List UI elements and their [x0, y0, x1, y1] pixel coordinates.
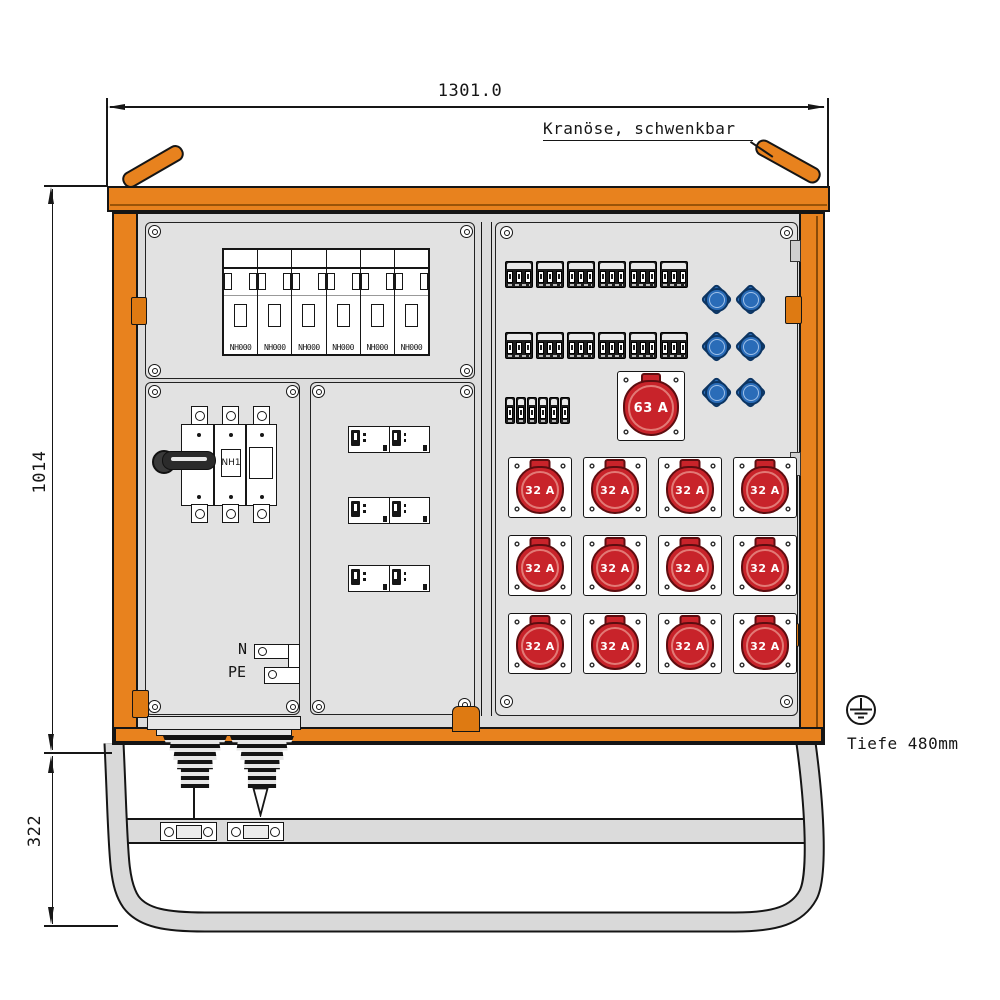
cee-socket-32a: 32 A	[733, 535, 797, 596]
dim-arrow	[48, 907, 54, 924]
schuko-socket	[701, 280, 733, 320]
distribution-cabinet-drawing: NH000 NH000 NH000 NH000 NH000 NH000 NH1 …	[0, 0, 1000, 1000]
screw	[148, 225, 161, 238]
fuse-label: NH000	[258, 343, 291, 354]
mcb-1pole	[516, 397, 526, 424]
extension-line	[44, 925, 118, 927]
screw	[148, 364, 161, 377]
socket-32a-label: 32 A	[750, 562, 780, 575]
crane-note: Kranöse, schwenkbar	[543, 119, 753, 141]
nh000-fuse-strip: NH000	[395, 250, 428, 354]
screw	[780, 226, 793, 239]
dim-base-label: 322	[25, 799, 45, 863]
din-module-pair	[348, 497, 430, 524]
dim-arrow	[48, 756, 54, 773]
cee-socket-32a: 32 A	[733, 457, 797, 518]
socket-32a-label: 32 A	[675, 484, 705, 497]
cee-socket-32a: 32 A	[508, 613, 572, 674]
fuse-label: NH000	[327, 343, 360, 354]
mcb-3pole	[567, 332, 595, 359]
screw	[312, 700, 325, 713]
cable-clamp	[227, 822, 284, 841]
screw	[148, 385, 161, 398]
screw	[312, 385, 325, 398]
extension-line	[106, 98, 108, 186]
cable-line	[193, 787, 195, 819]
nh000-fuse-strip: NH000	[327, 250, 361, 354]
earth-label: PE	[228, 663, 246, 681]
switch-terminal	[253, 504, 270, 523]
mcb-3pole	[629, 332, 657, 359]
nh000-fuse-strip: NH000	[224, 250, 258, 354]
switch-terminal	[191, 406, 208, 425]
mcb-1pole	[560, 397, 570, 424]
schuko-socket	[735, 373, 767, 413]
screw	[460, 385, 473, 398]
switch-label: NH1	[221, 458, 240, 468]
screw	[286, 700, 299, 713]
door-split-line	[491, 222, 492, 716]
fuse-label: NH000	[292, 343, 325, 354]
switch-terminal	[253, 406, 270, 425]
socket-32a-label: 32 A	[750, 640, 780, 653]
screw	[460, 225, 473, 238]
mcb-3pole	[598, 261, 626, 288]
mcb-3pole	[505, 261, 533, 288]
mcb-1pole	[505, 397, 515, 424]
dim-line-height	[52, 189, 54, 750]
gland-flange	[147, 716, 301, 730]
socket-32a-label: 32 A	[675, 640, 705, 653]
cee-socket-32a: 32 A	[508, 457, 572, 518]
screw	[148, 700, 161, 713]
switch-terminal	[191, 504, 208, 523]
switch-terminal	[222, 504, 239, 523]
screw	[286, 385, 299, 398]
gland-flange-step	[156, 729, 292, 736]
door-latch	[790, 240, 801, 262]
schuko-socket	[701, 327, 733, 367]
mcb-1pole	[538, 397, 548, 424]
schuko-socket	[735, 280, 767, 320]
hinge-tab-left	[131, 297, 147, 325]
socket-32a-label: 32 A	[525, 640, 555, 653]
mcb-row-1	[505, 261, 688, 288]
neutral-label: N	[238, 640, 247, 658]
dim-arrow	[48, 187, 54, 204]
cee-socket-32a: 32 A	[583, 535, 647, 596]
cee-socket-63a: 63 A	[617, 371, 685, 441]
dim-arrow	[808, 104, 825, 110]
mcb-3pole	[660, 261, 688, 288]
mcb-3pole	[598, 332, 626, 359]
fuse-label: NH000	[395, 343, 428, 354]
hinge-bottom-left	[132, 690, 149, 718]
mcb-1pole	[549, 397, 559, 424]
socket-32a-label: 32 A	[525, 562, 555, 575]
nh000-fuse-strip: NH000	[292, 250, 326, 354]
cee-socket-32a: 32 A	[583, 613, 647, 674]
fuse-label: NH000	[224, 343, 257, 354]
dim-height-label: 1014	[30, 440, 50, 504]
cee-socket-32a: 32 A	[658, 535, 722, 596]
switch-window	[249, 447, 273, 479]
extension-line	[827, 98, 829, 188]
cee-socket-32a: 32 A	[583, 457, 647, 518]
mcb-3pole	[629, 261, 657, 288]
cee-socket-32a: 32 A	[658, 457, 722, 518]
fuse-label: NH000	[361, 343, 394, 354]
dim-line-base	[52, 756, 54, 924]
din-module-pair	[348, 426, 430, 453]
depth-note: Tiefe 480mm	[847, 734, 958, 753]
cap-edge-line	[110, 204, 827, 206]
schuko-socket	[735, 327, 767, 367]
din-module-pair	[348, 565, 430, 592]
mcb-3pole	[536, 332, 564, 359]
cee-socket-32a: 32 A	[733, 613, 797, 674]
dim-arrow	[108, 104, 125, 110]
mcb-row-3	[505, 397, 570, 424]
switch-handle	[162, 451, 216, 470]
mcb-1pole	[527, 397, 537, 424]
earth-symbol-icon	[843, 692, 879, 728]
dim-line-width	[110, 106, 824, 108]
mcb-3pole	[567, 261, 595, 288]
mcb-row-2	[505, 332, 688, 359]
mcb-3pole	[660, 332, 688, 359]
switch-terminal	[222, 406, 239, 425]
door-edge-line	[816, 216, 818, 741]
nh000-fuse-block: NH000 NH000 NH000 NH000 NH000 NH000	[222, 248, 430, 356]
socket-32a-label: 32 A	[750, 484, 780, 497]
cee-socket-32a: 32 A	[658, 613, 722, 674]
socket-32a-label: 32 A	[600, 484, 630, 497]
mcb-3pole	[536, 261, 564, 288]
earth-bar	[264, 667, 300, 684]
screw	[500, 226, 513, 239]
frame-right-strip	[799, 212, 825, 745]
nh000-fuse-strip: NH000	[361, 250, 395, 354]
hinge-tab-right	[785, 296, 802, 324]
latch-bracket-bottom	[452, 706, 480, 732]
door-split-line	[481, 222, 482, 716]
frame-left-strip	[112, 212, 138, 745]
screw	[460, 364, 473, 377]
extension-line	[44, 752, 112, 754]
socket-63a-label: 63 A	[634, 401, 669, 416]
nh000-fuse-strip: NH000	[258, 250, 292, 354]
socket-32a-label: 32 A	[600, 640, 630, 653]
mcb-3pole	[505, 332, 533, 359]
cabinet-top-cap	[107, 186, 830, 212]
socket-32a-label: 32 A	[525, 484, 555, 497]
socket-32a-label: 32 A	[600, 562, 630, 575]
schuko-socket	[701, 373, 733, 413]
cee-socket-32a: 32 A	[508, 535, 572, 596]
cable-arrow	[252, 787, 269, 817]
cable-clamp	[160, 822, 217, 841]
screw	[780, 695, 793, 708]
switch-nh1-window: NH1	[221, 449, 241, 477]
dim-arrow	[48, 734, 54, 751]
screw	[500, 695, 513, 708]
socket-32a-label: 32 A	[675, 562, 705, 575]
dim-width-label: 1301.0	[400, 81, 540, 101]
